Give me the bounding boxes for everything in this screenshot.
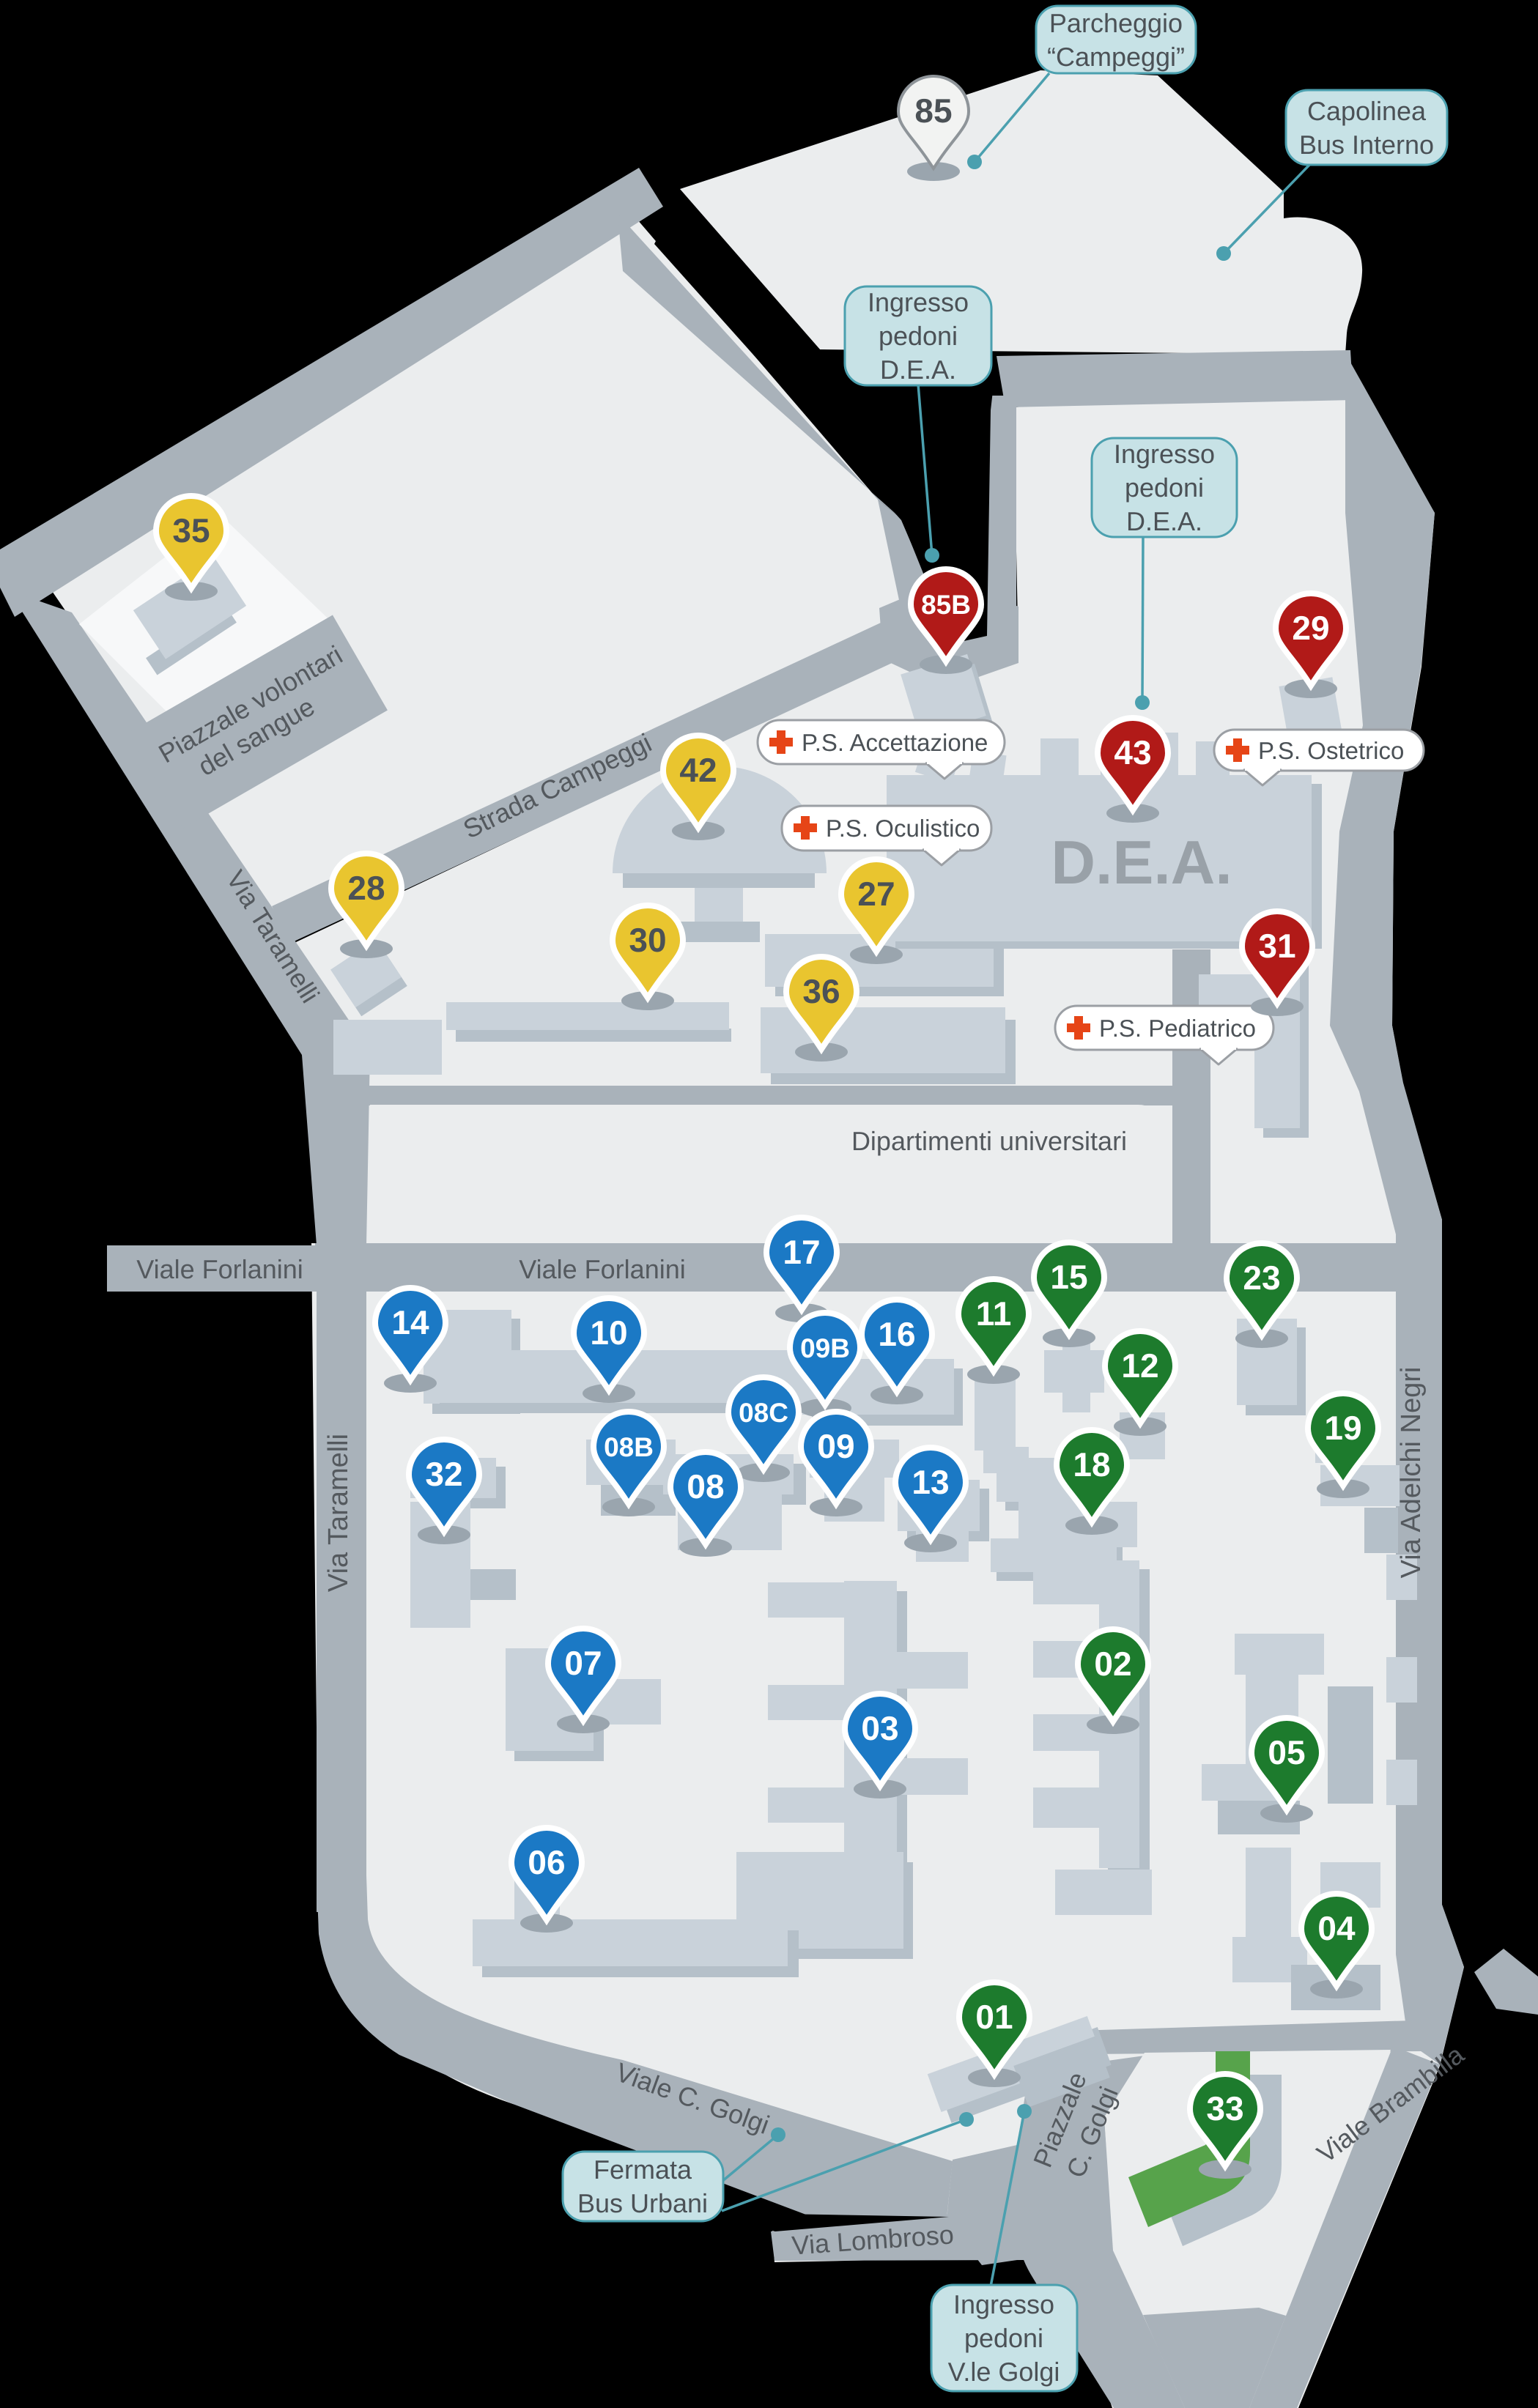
svg-text:11: 11 [976, 1294, 1012, 1333]
svg-text:10: 10 [590, 1314, 627, 1352]
svg-text:Capolinea: Capolinea [1307, 96, 1427, 126]
svg-text:14: 14 [391, 1303, 429, 1341]
svg-text:pedoni: pedoni [964, 2323, 1043, 2353]
svg-text:Fermata: Fermata [594, 2155, 692, 2185]
svg-text:28: 28 [347, 869, 385, 907]
svg-text:05: 05 [1268, 1733, 1305, 1771]
svg-text:D.E.A.: D.E.A. [1126, 506, 1202, 536]
svg-text:Dipartimenti universitari: Dipartimenti universitari [851, 1126, 1127, 1156]
svg-text:85: 85 [914, 92, 952, 130]
svg-text:17: 17 [783, 1233, 820, 1271]
svg-text:pedoni: pedoni [1125, 473, 1204, 503]
svg-text:03: 03 [861, 1709, 898, 1747]
svg-text:02: 02 [1094, 1645, 1131, 1683]
svg-text:08B: 08B [604, 1432, 654, 1462]
svg-text:Parcheggio: Parcheggio [1049, 8, 1183, 38]
svg-text:33: 33 [1206, 2089, 1243, 2127]
svg-text:“Campeggi”: “Campeggi” [1047, 42, 1185, 72]
svg-text:36: 36 [802, 972, 840, 1010]
svg-text:P.S. Ostetrico: P.S. Ostetrico [1258, 737, 1404, 764]
svg-text:30: 30 [629, 921, 666, 959]
svg-text:16: 16 [878, 1315, 915, 1353]
svg-text:Bus Urbani: Bus Urbani [577, 2188, 708, 2218]
svg-text:32: 32 [425, 1455, 462, 1493]
svg-text:13: 13 [912, 1463, 949, 1501]
svg-text:09B: 09B [800, 1333, 850, 1363]
svg-text:35: 35 [172, 511, 210, 549]
svg-text:19: 19 [1324, 1409, 1361, 1447]
svg-text:29: 29 [1292, 609, 1329, 647]
svg-text:12: 12 [1121, 1346, 1158, 1385]
svg-text:P.S. Pediatrico: P.S. Pediatrico [1099, 1015, 1256, 1042]
svg-text:06: 06 [528, 1843, 565, 1881]
svg-text:D.E.A.: D.E.A. [880, 355, 956, 385]
svg-text:18: 18 [1073, 1445, 1110, 1483]
svg-text:P.S. Accettazione: P.S. Accettazione [802, 729, 988, 756]
svg-text:09: 09 [817, 1427, 854, 1465]
svg-text:08C: 08C [739, 1398, 788, 1428]
svg-text:D.E.A.: D.E.A. [1051, 828, 1232, 897]
svg-text:31: 31 [1258, 927, 1295, 965]
svg-text:43: 43 [1114, 733, 1151, 771]
svg-text:Viale Forlanini: Viale Forlanini [136, 1254, 303, 1284]
svg-text:15: 15 [1050, 1258, 1087, 1296]
svg-text:Via Taramelli: Via Taramelli [323, 1434, 354, 1592]
svg-text:01: 01 [975, 1998, 1013, 2036]
svg-text:08: 08 [687, 1467, 724, 1505]
svg-text:Bus Interno: Bus Interno [1299, 130, 1434, 160]
svg-text:V.le Golgi: V.le Golgi [948, 2357, 1060, 2387]
svg-text:Ingresso: Ingresso [868, 287, 969, 317]
svg-text:04: 04 [1317, 1909, 1356, 1947]
svg-text:Ingresso: Ingresso [953, 2289, 1054, 2319]
svg-text:pedoni: pedoni [879, 321, 958, 351]
svg-text:P.S. Oculistico: P.S. Oculistico [826, 815, 980, 842]
svg-text:Via Adelchi Negri: Via Adelchi Negri [1396, 1367, 1427, 1579]
svg-text:85B: 85B [921, 590, 971, 620]
svg-text:23: 23 [1243, 1259, 1280, 1297]
svg-text:42: 42 [679, 751, 717, 789]
svg-text:27: 27 [857, 875, 895, 913]
svg-text:Ingresso: Ingresso [1114, 439, 1215, 469]
svg-text:Viale Forlanini: Viale Forlanini [519, 1254, 685, 1284]
svg-text:07: 07 [564, 1644, 602, 1682]
